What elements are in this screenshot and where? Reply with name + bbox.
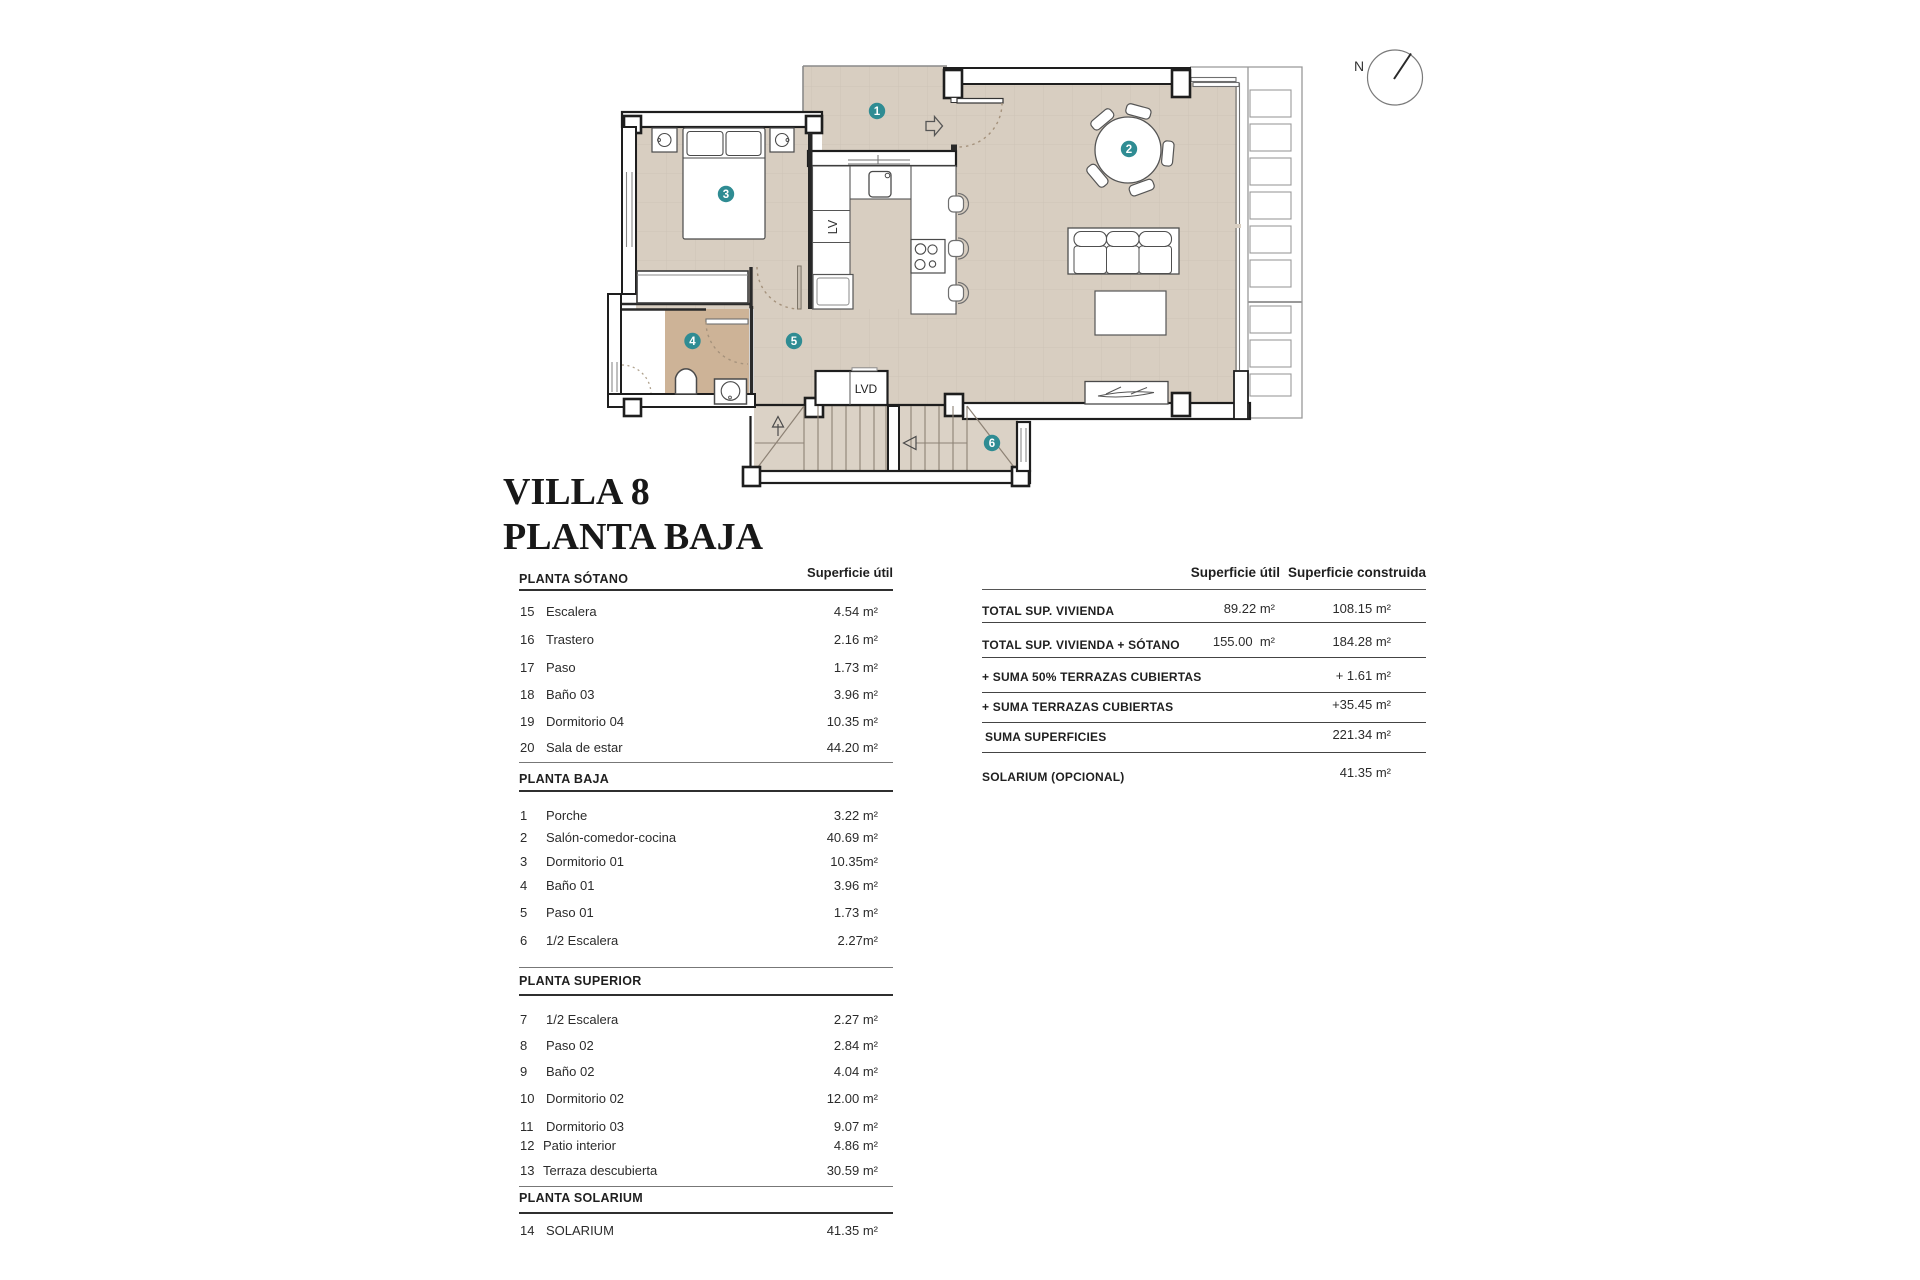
svg-text:3: 3 xyxy=(723,189,729,201)
svg-text:LV: LV xyxy=(826,219,840,234)
svg-text:5: 5 xyxy=(791,336,798,348)
svg-text:LVD: LVD xyxy=(855,382,878,396)
svg-text:1: 1 xyxy=(874,106,881,118)
svg-text:6: 6 xyxy=(989,438,995,450)
svg-text:2: 2 xyxy=(1126,144,1132,156)
svg-text:4: 4 xyxy=(689,336,696,348)
svg-text:N: N xyxy=(1354,58,1364,74)
